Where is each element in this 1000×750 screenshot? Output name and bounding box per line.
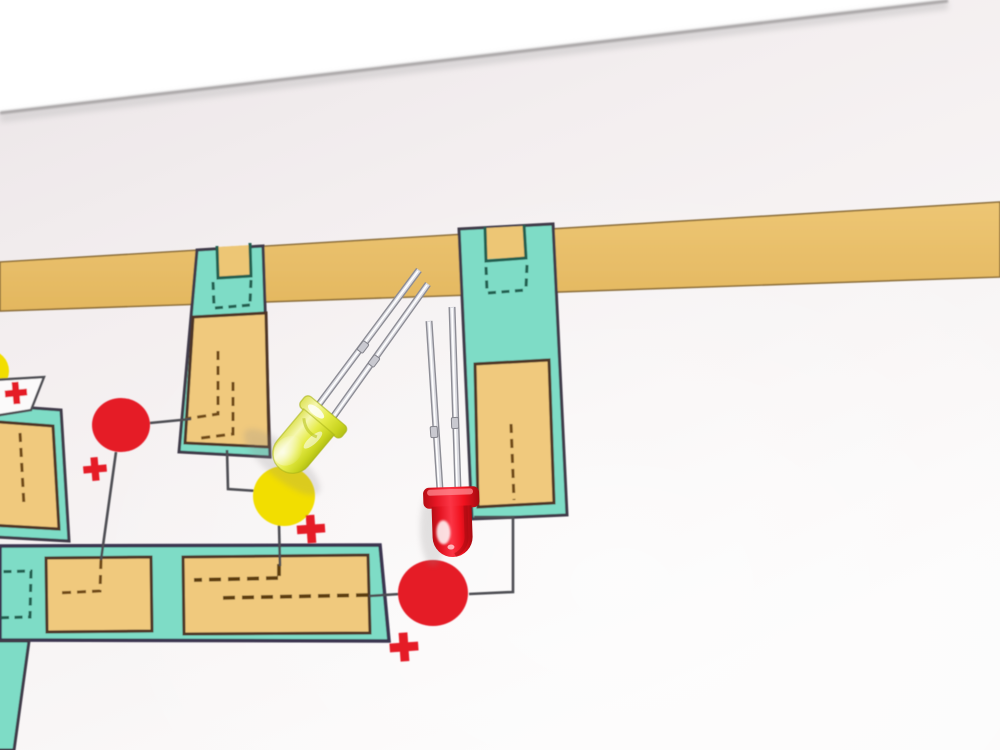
solder-pad xyxy=(0,421,59,529)
gold-notch xyxy=(217,245,252,279)
solder-pad xyxy=(185,313,269,447)
bottom-bus-bar xyxy=(0,545,389,641)
side-component-left xyxy=(0,404,69,541)
solder-pad xyxy=(46,557,152,632)
led-position-circle-red xyxy=(398,560,468,626)
gold-notch xyxy=(486,226,525,259)
photo-canvas xyxy=(0,0,1000,750)
wire-segment xyxy=(279,524,280,566)
terminal-strip-right xyxy=(459,224,567,519)
photo-scene xyxy=(0,0,1000,750)
lead-crimp xyxy=(451,417,458,428)
led-position-circle-red xyxy=(92,398,150,452)
lead-crimp xyxy=(430,426,438,437)
